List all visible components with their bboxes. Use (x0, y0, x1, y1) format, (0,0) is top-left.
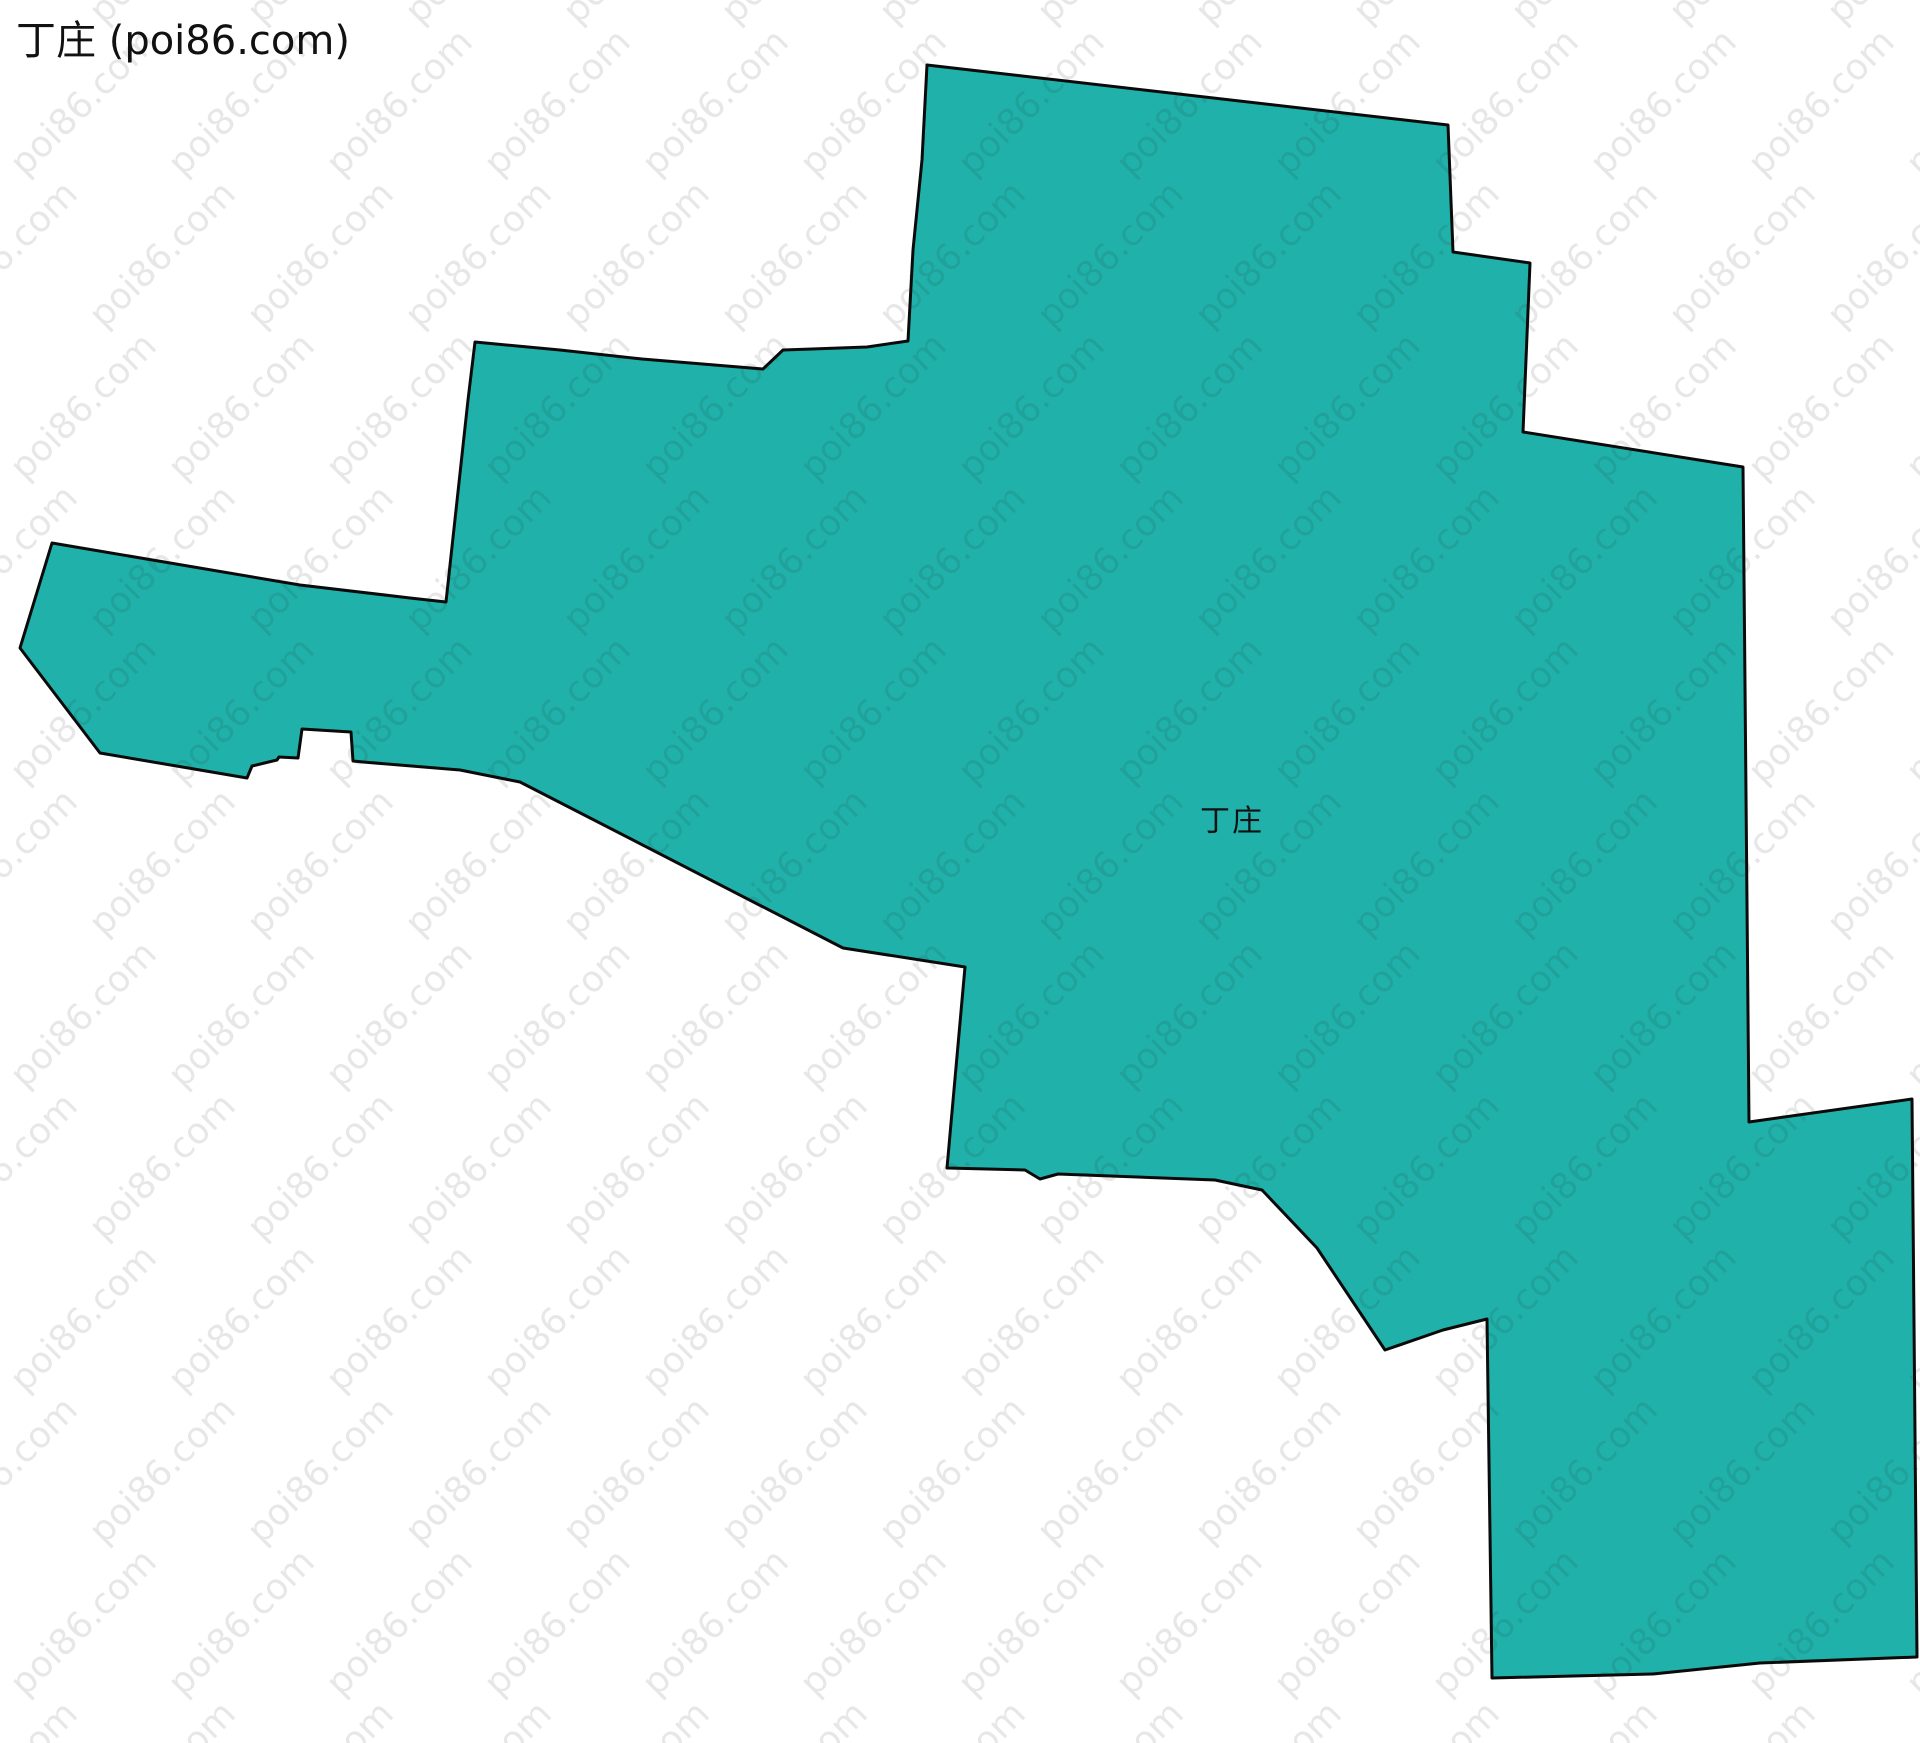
map-canvas: poi86.compoi86.compoi86.compoi86.compoi8… (0, 0, 1920, 1743)
page-title: 丁庄 (poi86.com) (16, 8, 350, 66)
region-polygon (20, 65, 1917, 1678)
region-label: 丁庄 (1200, 796, 1264, 840)
region-map-svg (0, 0, 1920, 1743)
